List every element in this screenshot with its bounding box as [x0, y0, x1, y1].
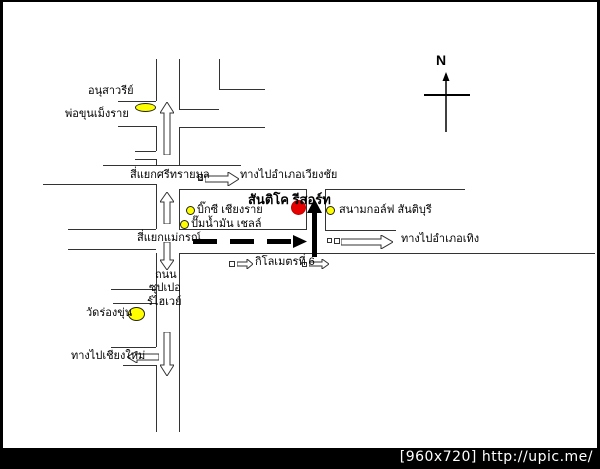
road-edge [135, 151, 156, 152]
image-frame: อนุสาวรีย์ พ่อขุนเม็งราย สี่แยกศรีทรายมู… [0, 0, 600, 469]
road-edge [135, 159, 156, 160]
km6-label: กิโลเมตรที่ 6 [255, 256, 315, 268]
golf-label: สนามกอล์ฟ สันติบุรี [339, 204, 432, 216]
monument-label-line2: พ่อขุนเม็งราย [65, 108, 129, 120]
wat-label: วัดร่องขุ่น [86, 307, 132, 319]
bigc-marker [186, 206, 195, 215]
road-edge [179, 109, 219, 110]
km-marker-box-icon [327, 238, 332, 243]
road-edge [179, 59, 180, 109]
road-edge [156, 184, 157, 229]
monument-marker [135, 103, 156, 112]
golf-marker [326, 206, 335, 215]
road-edge [156, 365, 157, 432]
resort-label: สันติโค รีสอร์ท [248, 194, 331, 206]
road-edge [118, 101, 156, 102]
road-edge [156, 126, 157, 151]
junction-srisaimun-label: สี่แยกศรีทรายมูล [130, 169, 210, 181]
watermark-bar: [960x720] http://upic.me/ [0, 448, 600, 469]
direction-thoeng-label: ทางไปอำเภอเทิง [401, 233, 479, 245]
direction-chiangmai-label: ทางไปเชียงใหม่ [71, 350, 145, 362]
road-edge [123, 365, 156, 366]
monument-label-line1: อนุสาวรีย์ [88, 85, 134, 97]
direction-wiangchai-label: ทางไปอำเภอเวียงชัย [240, 169, 337, 181]
road-edge [219, 59, 220, 89]
right-arrow-thoeng-icon [341, 235, 393, 249]
dashed-route-arrow-icon [193, 235, 307, 248]
road-edge [68, 249, 156, 250]
compass-north-icon [418, 47, 478, 137]
road-edge [179, 127, 265, 128]
km-marker-box-icon [229, 261, 235, 267]
right-arrow-wiangchai-icon [205, 172, 239, 186]
road-edge [325, 189, 465, 190]
superhighway-label-line3: ร์ไฮเวย์ [147, 296, 182, 308]
right-arrow-km6-icon [237, 259, 253, 269]
shell-marker [180, 220, 189, 229]
km-marker-box-icon [334, 238, 340, 244]
map-canvas: อนุสาวรีย์ พ่อขุนเม็งราย สี่แยกศรีทรายมู… [3, 2, 597, 448]
road-edge [103, 165, 241, 166]
road-edge [179, 127, 180, 165]
entrance-up-arrow-icon [307, 199, 322, 257]
down-arrow-icon [160, 332, 174, 376]
down-arrow-icon [160, 242, 174, 270]
junction-maekorn-label: สี่แยกแม่กรณ์ [137, 232, 201, 244]
up-arrow-icon [160, 102, 174, 155]
road-edge [156, 59, 157, 101]
superhighway-label-line2: ซุปเปอ [149, 282, 181, 294]
superhighway-label-line1: ถนน [155, 269, 177, 281]
road-edge [68, 229, 156, 230]
shell-label: ปั๊มน้ำมัน เชลล์ [191, 218, 261, 230]
road-edge [179, 253, 180, 432]
road-edge [219, 89, 265, 90]
up-arrow-icon [160, 192, 174, 224]
road-edge [325, 230, 396, 231]
watermark-text: [960x720] http://upic.me/ [400, 449, 593, 465]
road-edge [43, 184, 156, 185]
road-edge [111, 347, 156, 348]
road-edge [179, 253, 595, 254]
road-edge [118, 126, 156, 127]
